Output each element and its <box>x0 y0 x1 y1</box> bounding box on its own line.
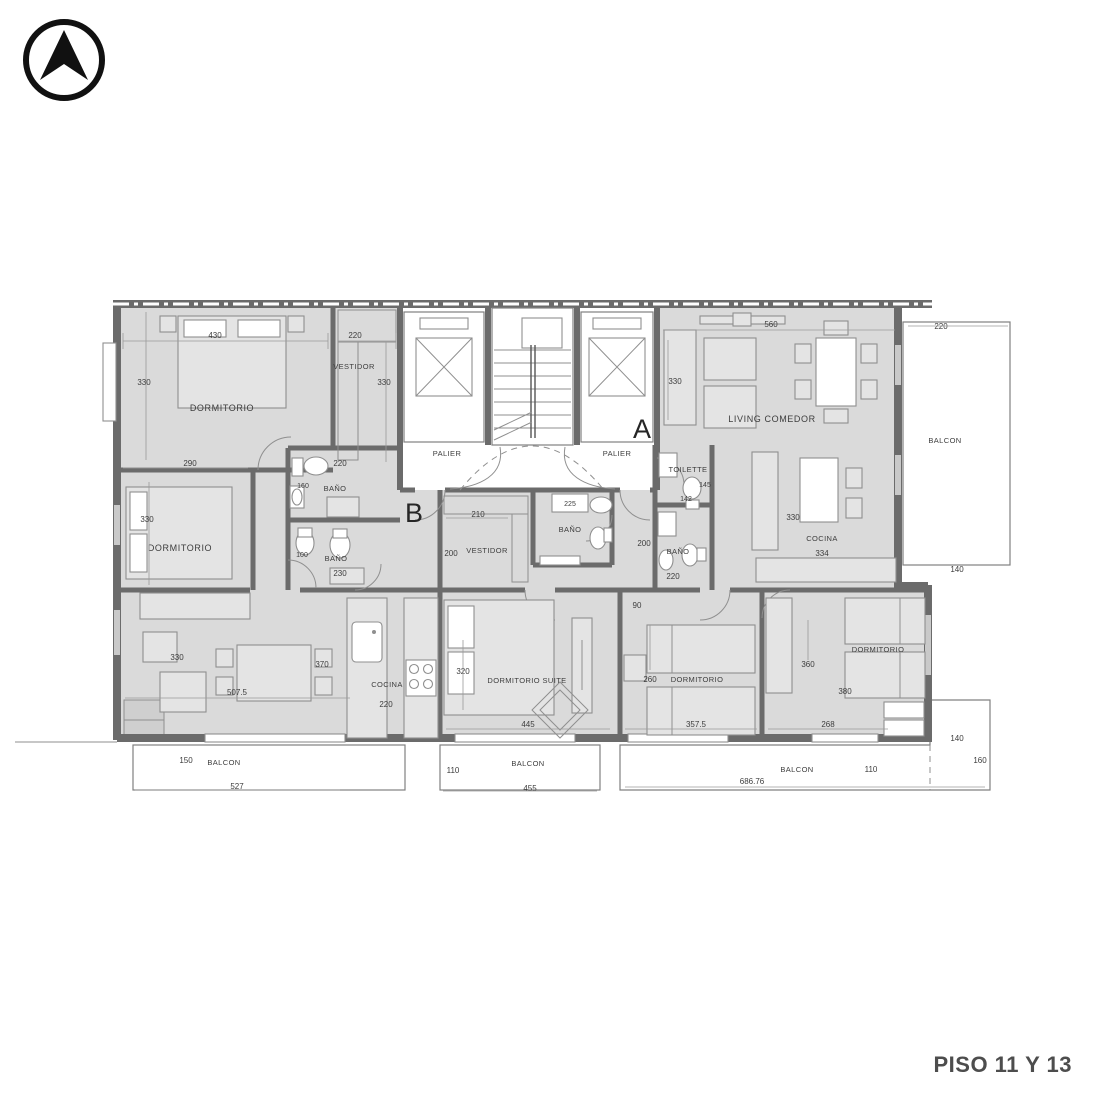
dim-220-bano-right: 220 <box>666 572 680 581</box>
dim-370-living-b: 370 <box>315 660 329 669</box>
label-palier-a: PALIER <box>603 449 632 458</box>
plan-title: PISO 11 Y 13 <box>933 1052 1072 1078</box>
dim-160-bano-upper: 160 <box>297 483 309 490</box>
room-label-bano-lower-b: BAÑO <box>325 554 348 563</box>
dim-334-cocina-a: 334 <box>815 549 829 558</box>
dim-220-bano-upper: 220 <box>333 459 347 468</box>
dim-140-balcon-bottom: 140 <box>950 734 964 743</box>
dim-145-toilette: 145 <box>699 482 711 489</box>
dim-268-dorm-right: 268 <box>821 720 835 729</box>
room-label-bano-right-a: BAÑO <box>667 547 690 556</box>
room-label-cocina-b: COCINA <box>371 680 403 689</box>
room-label-vestidor-a: VESTIDOR <box>466 546 508 555</box>
room-label-cocina-a: COCINA <box>806 534 838 543</box>
dim-100-bano-lower: 100 <box>296 552 308 559</box>
dim-330-living-a: 330 <box>668 377 682 386</box>
dim-140-balcon-right: 140 <box>950 565 964 574</box>
dim-380-dorm-right: 380 <box>838 687 852 696</box>
staircase <box>492 308 573 445</box>
room-label-dormitorio-top-b: DORMITORIO <box>190 403 254 413</box>
floor-plan: DORMITORIO 430 330 VESTIDOR 220 330 DORM… <box>0 0 1100 1100</box>
dim-220-balcon-right: 220 <box>934 322 948 331</box>
dim-455-balcon-center: 455 <box>523 784 537 793</box>
north-arrow-icon <box>26 22 102 98</box>
bed-dorm-top-b <box>160 316 304 408</box>
dim-445-suite: 445 <box>521 720 535 729</box>
dim-160-balcon-bottom: 160 <box>973 756 987 765</box>
dim-330-dorm-mid: 330 <box>140 515 154 524</box>
dim-225-bano-center: 225 <box>564 501 576 508</box>
dim-142-toilette: 142 <box>680 496 692 503</box>
room-label-balcon-right: BALCON <box>928 436 961 445</box>
bed-dorm-mid-b <box>126 487 232 579</box>
unit-b-letter: B <box>405 498 423 528</box>
dim-560-living-a: 560 <box>764 320 778 329</box>
dim-330-dorm-top: 330 <box>137 378 151 387</box>
label-palier-b: PALIER <box>433 449 462 458</box>
dim-230-bano-lower: 230 <box>333 569 347 578</box>
dim-330-cocina-a: 330 <box>786 513 800 522</box>
dim-110-balcon-bottom: 110 <box>865 765 878 774</box>
room-label-balcon-bl: BALCON <box>207 758 240 767</box>
dim-330-living-b: 330 <box>170 653 184 662</box>
room-label-vestidor-b: VESTIDOR <box>333 362 375 371</box>
room-label-living-a: LIVING COMEDOR <box>728 414 815 424</box>
dim-90-hall: 90 <box>633 601 642 610</box>
dim-200-vestidor-a: 200 <box>444 549 458 558</box>
unit-a-letter: A <box>633 414 651 444</box>
dim-360-dorm-right: 360 <box>801 660 815 669</box>
dim-110-balcon-center: 110 <box>447 766 460 775</box>
dim-330-vestidor-b: 330 <box>377 378 391 387</box>
dim-220-cocina-b: 220 <box>379 700 393 709</box>
dim-686-balcon-bottom: 686.76 <box>740 777 765 786</box>
dim-507-living-b: 507.5 <box>227 688 248 697</box>
dim-260-dorm-middle: 260 <box>643 675 657 684</box>
dim-200-bano-right: 200 <box>637 539 651 548</box>
dim-150-balcon-bl: 150 <box>179 756 193 765</box>
room-label-balcon-center: BALCON <box>511 759 544 768</box>
room-label-dormitorio-right: DORMITORIO <box>852 645 905 654</box>
room-label-balcon-bottom: BALCON <box>780 765 813 774</box>
palier-area <box>450 446 615 490</box>
dim-290: 290 <box>183 459 197 468</box>
room-label-dormitorio-suite: DORMITORIO SUITE <box>487 676 566 685</box>
dim-357-dorm-middle: 357.5 <box>686 720 707 729</box>
room-label-dormitorio-mid-b: DORMITORIO <box>148 543 212 553</box>
room-label-bano-upper-b: BAÑO <box>324 484 347 493</box>
dim-430: 430 <box>208 331 222 340</box>
room-label-bano-center-a: BAÑO <box>559 525 582 534</box>
elevator-left <box>404 312 484 442</box>
dim-220-vestidor-b: 220 <box>348 331 362 340</box>
room-label-dormitorio-middle: DORMITORIO <box>671 675 724 684</box>
room-label-toilette: TOILETTE <box>669 465 708 474</box>
